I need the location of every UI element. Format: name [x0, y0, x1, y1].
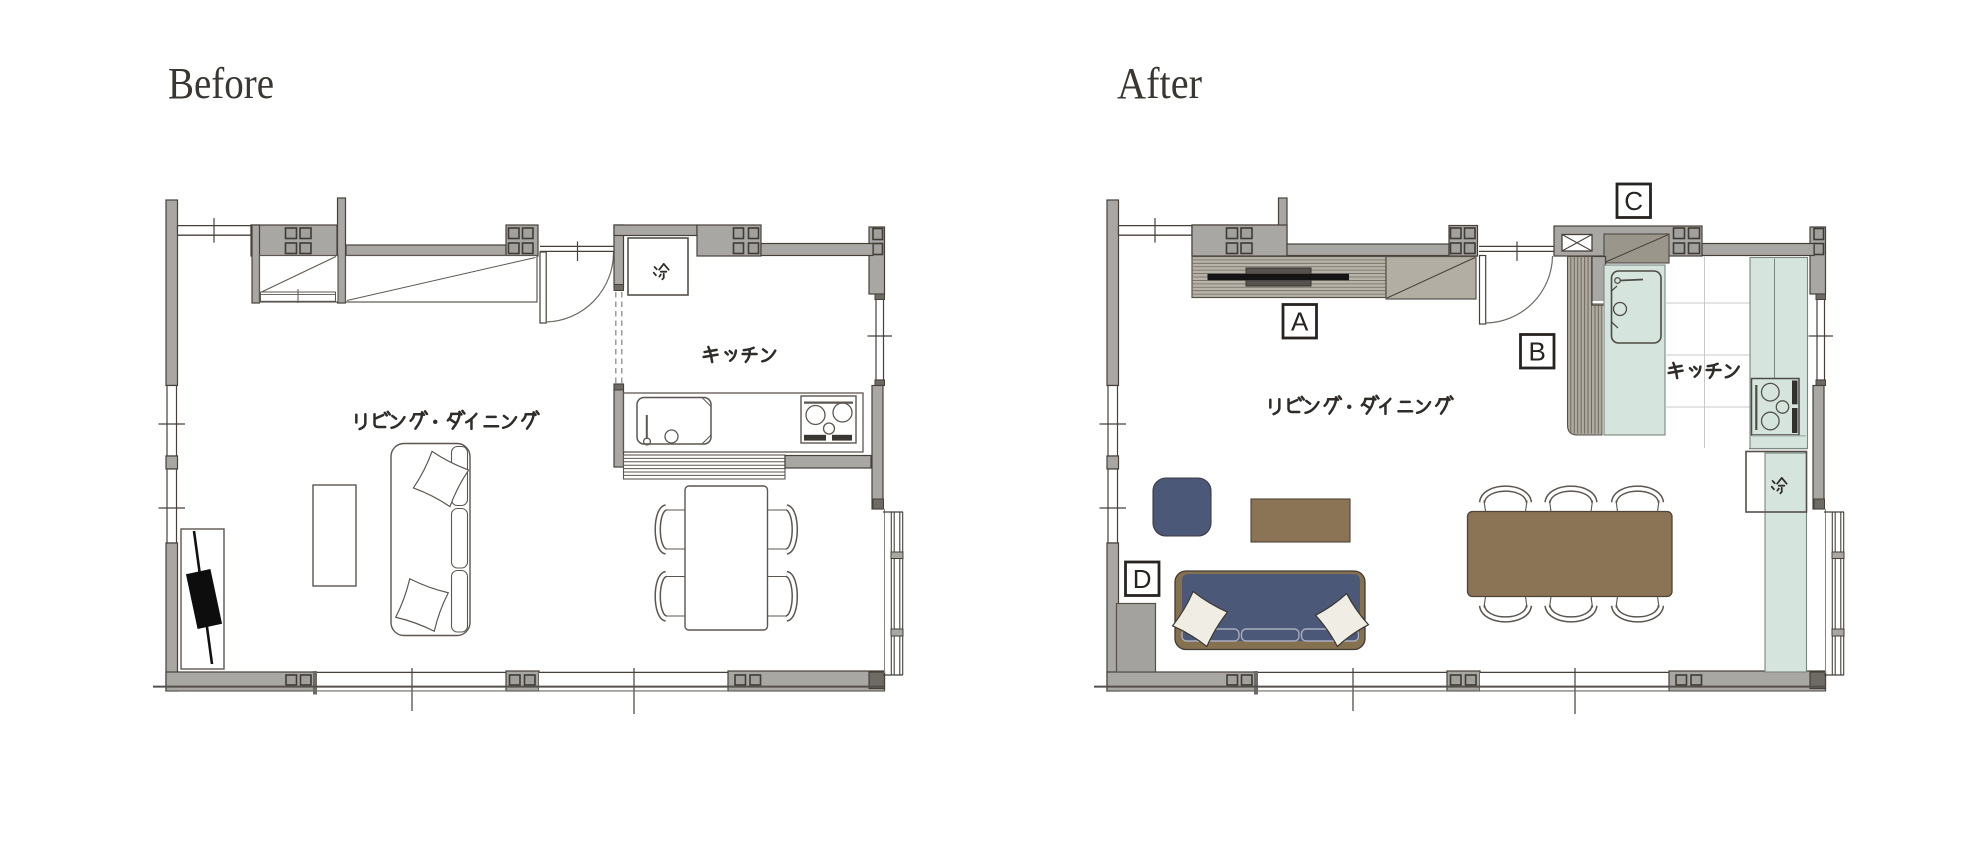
svg-text:D: D [1133, 564, 1152, 594]
svg-text:A: A [1291, 307, 1309, 337]
svg-text:After: After [1117, 59, 1202, 108]
svg-text:Before: Before [168, 59, 274, 108]
svg-text:B: B [1529, 337, 1546, 367]
svg-text:C: C [1624, 186, 1643, 216]
